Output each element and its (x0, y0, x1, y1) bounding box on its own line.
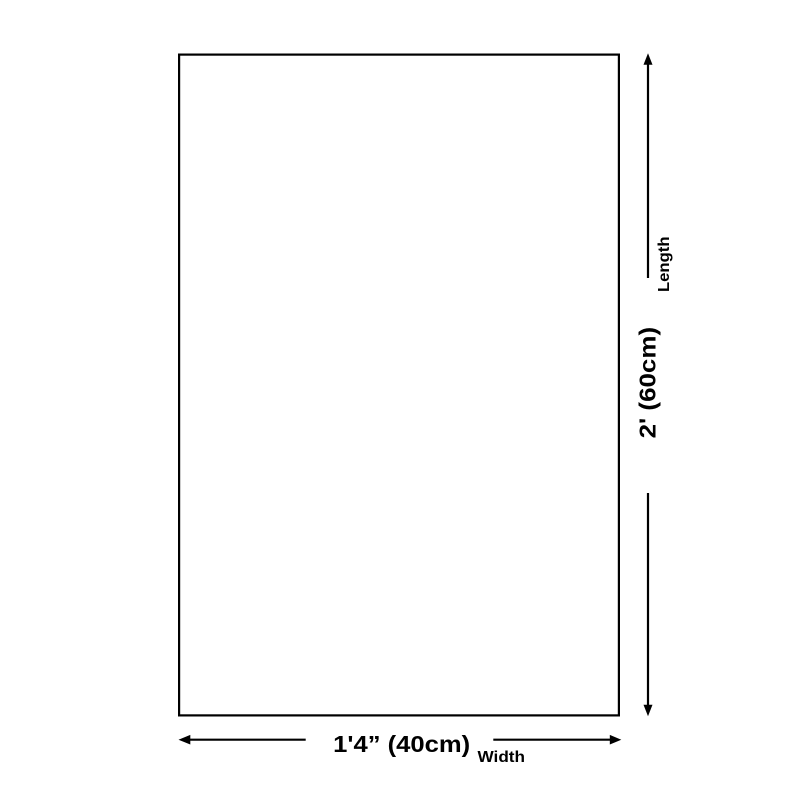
svg-text:2' (60cm): 2' (60cm) (635, 327, 661, 439)
svg-text:Length: Length (656, 237, 673, 293)
svg-text:1'4” (40cm): 1'4” (40cm) (333, 731, 470, 757)
svg-text:Width: Width (478, 749, 526, 766)
